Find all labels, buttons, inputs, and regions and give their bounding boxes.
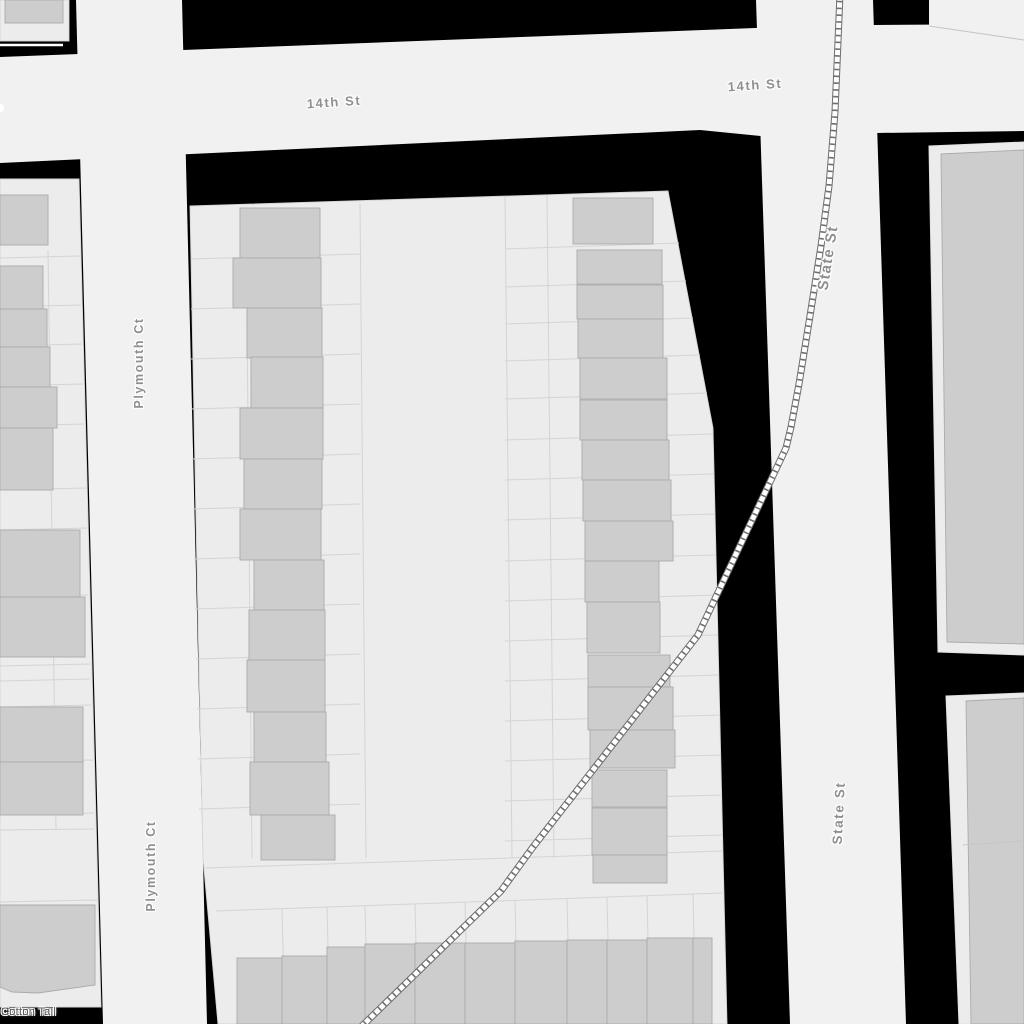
trail-label-cotton-tail: Cotton Tail bbox=[1, 1007, 56, 1018]
building bbox=[415, 943, 465, 1024]
building bbox=[240, 509, 321, 560]
building bbox=[577, 250, 662, 284]
building bbox=[251, 357, 323, 408]
building bbox=[585, 561, 659, 602]
building bbox=[593, 855, 667, 883]
street-label-14th-st-east: 14th St bbox=[727, 77, 782, 94]
building bbox=[693, 938, 712, 1024]
building bbox=[966, 698, 1024, 1024]
building bbox=[247, 660, 325, 712]
building bbox=[577, 285, 663, 319]
building bbox=[0, 266, 43, 309]
building bbox=[261, 815, 335, 860]
building bbox=[0, 762, 83, 815]
building bbox=[941, 150, 1024, 644]
building bbox=[582, 440, 669, 480]
building bbox=[254, 712, 326, 762]
building bbox=[592, 808, 667, 855]
building bbox=[0, 597, 85, 657]
building bbox=[250, 762, 329, 815]
building bbox=[327, 947, 365, 1024]
building bbox=[573, 198, 653, 244]
building bbox=[237, 958, 282, 1024]
building bbox=[240, 408, 323, 459]
building bbox=[240, 208, 320, 258]
map-canvas[interactable]: 14th St 14th St Plymouth Ct Plymouth Ct … bbox=[0, 0, 1024, 1024]
building bbox=[567, 940, 607, 1024]
building bbox=[580, 400, 667, 440]
street-label-14th-st-west: 14th St bbox=[306, 94, 361, 111]
building bbox=[0, 195, 48, 245]
building bbox=[647, 938, 693, 1024]
building bbox=[233, 258, 321, 308]
building bbox=[0, 428, 53, 490]
building bbox=[0, 530, 80, 597]
building bbox=[607, 940, 647, 1024]
building bbox=[580, 358, 667, 399]
building bbox=[249, 610, 325, 660]
building bbox=[0, 347, 50, 387]
building bbox=[465, 943, 515, 1024]
building bbox=[587, 602, 660, 653]
building bbox=[282, 956, 327, 1024]
building bbox=[0, 387, 57, 428]
building bbox=[5, 0, 63, 23]
building bbox=[0, 905, 95, 993]
building bbox=[592, 770, 667, 807]
building bbox=[0, 309, 47, 347]
street-label-plymouth-ct-south: Plymouth Ct bbox=[145, 820, 158, 911]
building bbox=[0, 707, 83, 762]
building bbox=[515, 941, 567, 1024]
building bbox=[583, 480, 671, 521]
street-label-plymouth-ct-north: Plymouth Ct bbox=[133, 317, 146, 408]
street-label-state-st-south: State St bbox=[831, 781, 848, 845]
building bbox=[585, 521, 673, 561]
building bbox=[578, 319, 663, 358]
building bbox=[254, 560, 324, 610]
building bbox=[247, 308, 322, 358]
building bbox=[244, 459, 322, 509]
central-block bbox=[190, 191, 727, 1024]
